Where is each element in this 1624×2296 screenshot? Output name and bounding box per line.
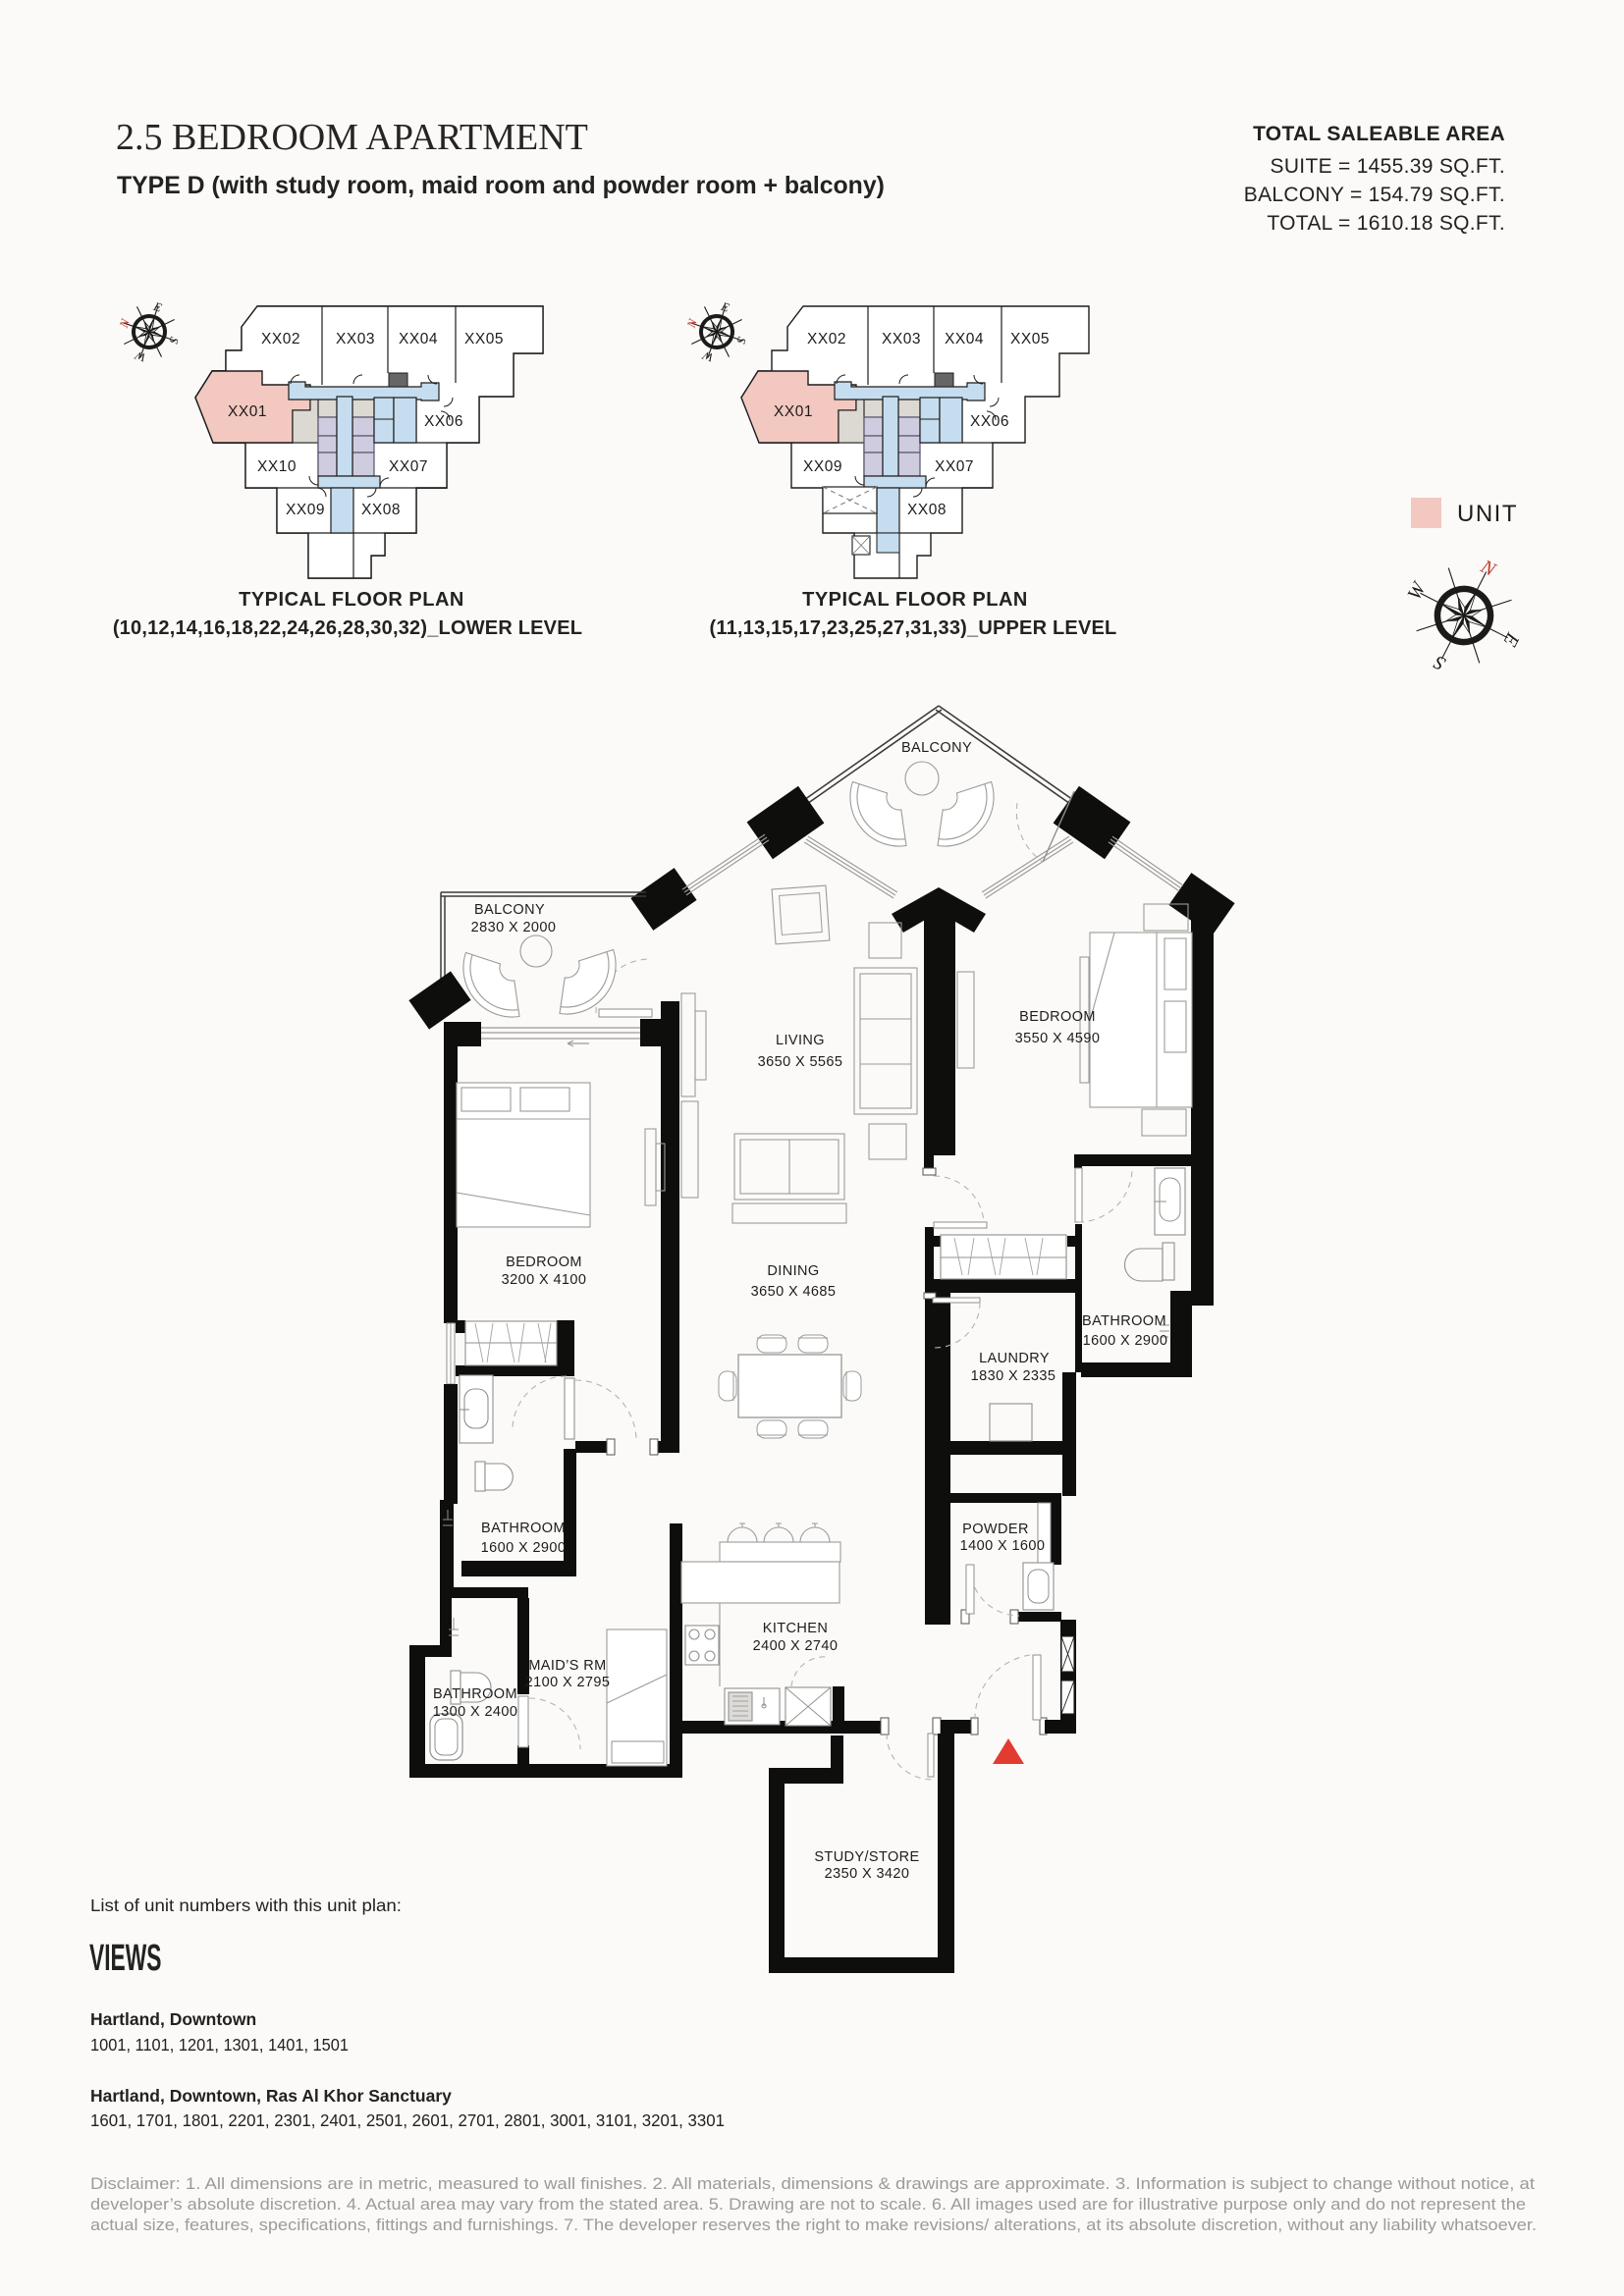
svg-text:developer’s absolute discretio: developer’s absolute discretion. 4. Actu… bbox=[90, 2195, 1526, 2214]
svg-text:1400 X 1600: 1400 X 1600 bbox=[960, 1538, 1046, 1554]
svg-text:POWDER: POWDER bbox=[962, 1522, 1029, 1537]
svg-text:BALCONY = 154.79 SQ.FT.: BALCONY = 154.79 SQ.FT. bbox=[1244, 184, 1505, 206]
svg-text:W: W bbox=[1403, 577, 1431, 604]
svg-text:S: S bbox=[166, 335, 182, 346]
svg-text:TYPE D (with study room, maid: TYPE D (with study room, maid room and p… bbox=[117, 173, 885, 199]
svg-text:XX09: XX09 bbox=[803, 458, 842, 475]
svg-text:DINING: DINING bbox=[767, 1263, 819, 1279]
svg-text:BALCONY: BALCONY bbox=[474, 902, 545, 918]
svg-text:VIEWS: VIEWS bbox=[89, 1937, 161, 1978]
svg-text:MAID’S RM: MAID’S RM bbox=[528, 1658, 606, 1674]
svg-text:3650 X 5565: 3650 X 5565 bbox=[758, 1054, 843, 1070]
svg-text:E: E bbox=[1499, 628, 1525, 650]
svg-text:(11,13,15,17,23,25,27,31,33)_U: (11,13,15,17,23,25,27,31,33)_UPPER LEVEL bbox=[710, 617, 1117, 639]
svg-text:S: S bbox=[733, 335, 749, 346]
svg-text:actual size, features, specifi: actual size, features, specifications, f… bbox=[90, 2216, 1537, 2234]
svg-text:3550 X 4590: 3550 X 4590 bbox=[1015, 1031, 1101, 1046]
svg-text:BALCONY: BALCONY bbox=[901, 740, 972, 756]
svg-text:2.5 BEDROOM APARTMENT: 2.5 BEDROOM APARTMENT bbox=[116, 117, 588, 158]
svg-text:W: W bbox=[133, 347, 148, 364]
svg-text:1300 X 2400: 1300 X 2400 bbox=[433, 1704, 518, 1720]
svg-text:SUITE = 1455.39 SQ.FT.: SUITE = 1455.39 SQ.FT. bbox=[1271, 155, 1505, 178]
svg-text:Hartland, Downtown: Hartland, Downtown bbox=[90, 2009, 256, 2029]
svg-text:TOTAL = 1610.18 SQ.FT.: TOTAL = 1610.18 SQ.FT. bbox=[1267, 212, 1505, 235]
svg-text:XX10: XX10 bbox=[257, 458, 297, 475]
svg-text:1600 X 2900: 1600 X 2900 bbox=[481, 1540, 567, 1556]
svg-text:TYPICAL FLOOR PLAN: TYPICAL FLOOR PLAN bbox=[239, 589, 464, 611]
svg-text:W: W bbox=[700, 347, 716, 364]
svg-text:N: N bbox=[1477, 556, 1500, 582]
svg-text:2350 X 3420: 2350 X 3420 bbox=[825, 1866, 910, 1882]
svg-text:BATHROOM: BATHROOM bbox=[481, 1521, 566, 1536]
svg-text:Hartland, Downtown, Ras Al Kho: Hartland, Downtown, Ras Al Khor Sanctuar… bbox=[90, 2086, 452, 2106]
svg-text:1001, 1101, 1201, 1301, 1401,: 1001, 1101, 1201, 1301, 1401, 1501 bbox=[90, 2035, 349, 2055]
svg-text:TYPICAL FLOOR PLAN: TYPICAL FLOOR PLAN bbox=[802, 589, 1028, 611]
svg-text:LIVING: LIVING bbox=[776, 1033, 825, 1048]
svg-text:(10,12,14,16,18,22,24,26,28,30: (10,12,14,16,18,22,24,26,28,30,32)_LOWER… bbox=[113, 617, 582, 639]
svg-text:List of unit numbers with this: List of unit numbers with this unit plan… bbox=[90, 1896, 402, 1915]
svg-text:S: S bbox=[1431, 651, 1449, 674]
svg-text:BATHROOM: BATHROOM bbox=[433, 1686, 517, 1702]
svg-text:E: E bbox=[151, 299, 164, 315]
svg-text:LAUNDRY: LAUNDRY bbox=[979, 1351, 1050, 1366]
svg-text:STUDY/STORE: STUDY/STORE bbox=[814, 1849, 919, 1865]
svg-text:N: N bbox=[684, 316, 700, 330]
svg-text:UNIT: UNIT bbox=[1457, 501, 1518, 527]
svg-text:Disclaimer: 1. All dimensions: Disclaimer: 1. All dimensions are in met… bbox=[90, 2174, 1535, 2193]
svg-text:BEDROOM: BEDROOM bbox=[1019, 1009, 1096, 1025]
svg-text:3200 X 4100: 3200 X 4100 bbox=[502, 1272, 587, 1288]
svg-text:1830 X 2335: 1830 X 2335 bbox=[971, 1368, 1056, 1384]
svg-text:1601, 1701, 1801, 2201, 2301,: 1601, 1701, 1801, 2201, 2301, 2401, 2501… bbox=[90, 2110, 725, 2130]
svg-text:1600 X 2900: 1600 X 2900 bbox=[1083, 1333, 1168, 1349]
svg-text:KITCHEN: KITCHEN bbox=[763, 1621, 828, 1636]
svg-text:XX09: XX09 bbox=[286, 502, 325, 518]
svg-text:TOTAL SALEABLE AREA: TOTAL SALEABLE AREA bbox=[1253, 123, 1505, 145]
svg-text:N: N bbox=[117, 316, 133, 330]
svg-text:2100 X 2795: 2100 X 2795 bbox=[525, 1675, 611, 1690]
svg-text:BATHROOM: BATHROOM bbox=[1082, 1313, 1166, 1329]
svg-text:BEDROOM: BEDROOM bbox=[506, 1255, 582, 1270]
svg-text:E: E bbox=[719, 299, 731, 315]
svg-text:2830 X 2000: 2830 X 2000 bbox=[471, 920, 557, 935]
svg-text:3650 X 4685: 3650 X 4685 bbox=[751, 1284, 837, 1300]
svg-text:2400 X 2740: 2400 X 2740 bbox=[753, 1638, 839, 1654]
